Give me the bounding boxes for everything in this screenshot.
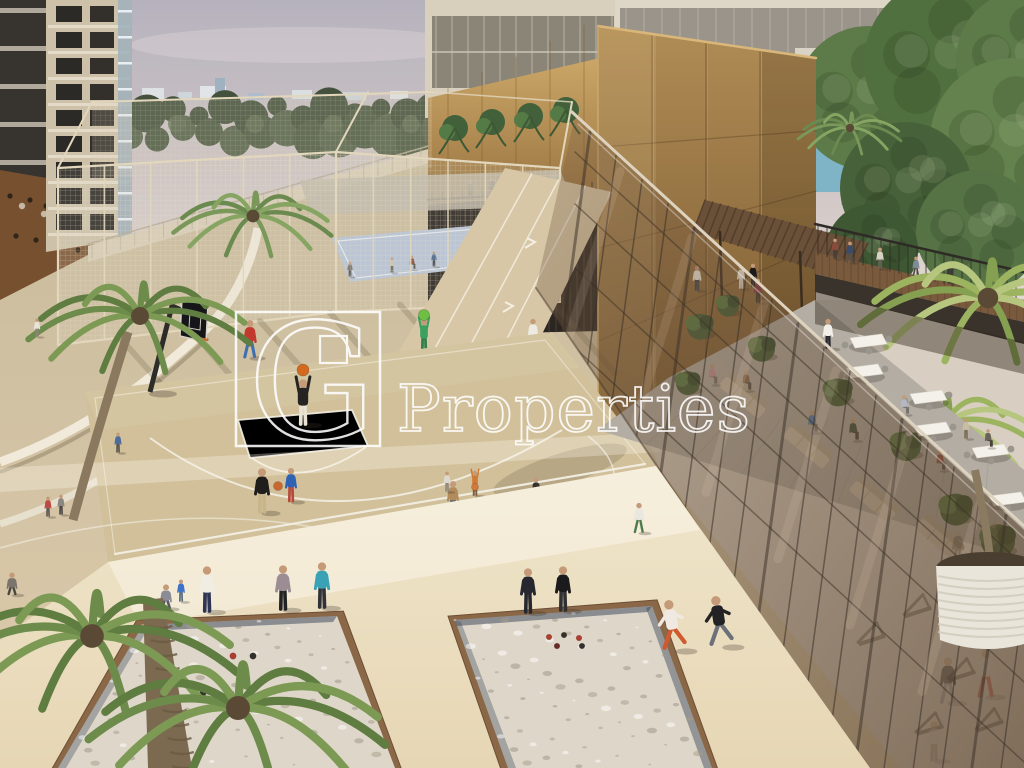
rendering-canvas: G Properties xyxy=(0,0,1024,768)
watermark-logo-letter: G xyxy=(248,289,376,476)
watermark-text: Properties xyxy=(397,372,751,447)
architectural-rendering: G Properties xyxy=(0,0,1024,768)
